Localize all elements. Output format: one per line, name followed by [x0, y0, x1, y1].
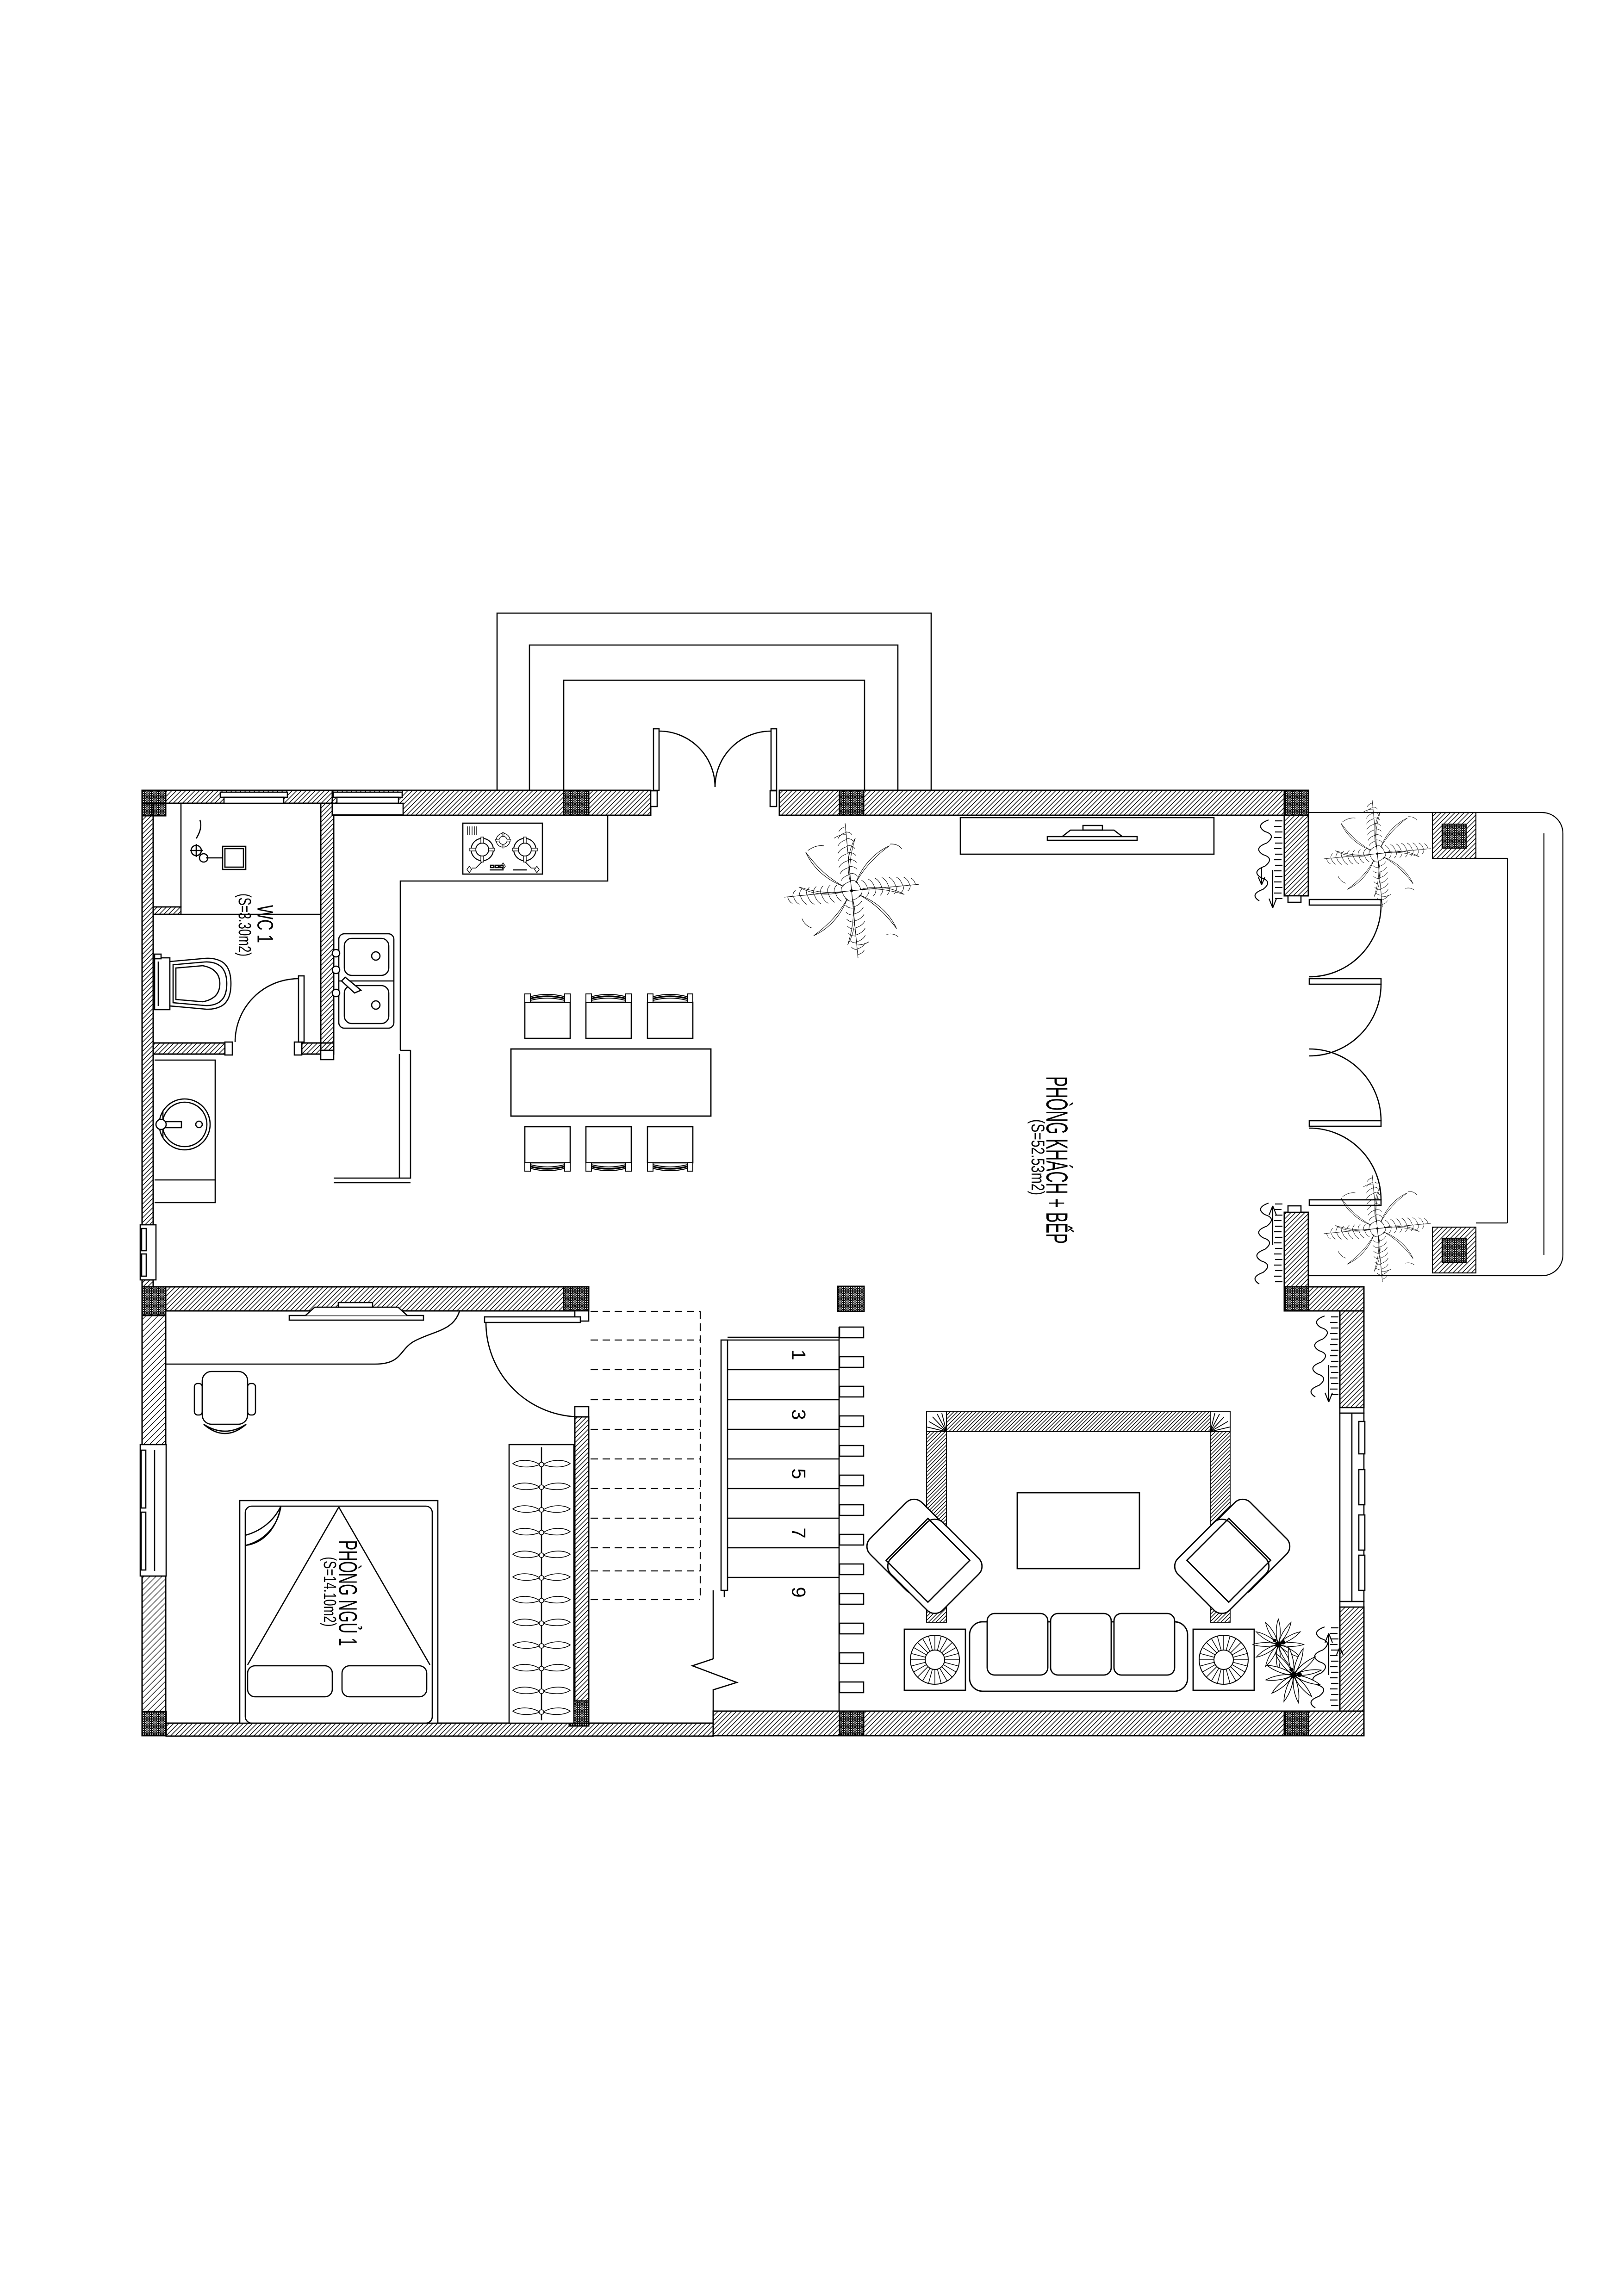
svg-text:(S=3.30m2): (S=3.30m2): [235, 894, 254, 956]
svg-text:1: 1: [788, 1349, 810, 1360]
svg-text:3: 3: [788, 1409, 810, 1420]
svg-text:(S=14.10m2): (S=14.10m2): [320, 1557, 339, 1627]
svg-text:7: 7: [788, 1527, 810, 1538]
svg-text:(S=52.53m2): (S=52.53m2): [1027, 1119, 1048, 1195]
svg-text:5: 5: [788, 1468, 810, 1479]
svg-text:9: 9: [788, 1587, 810, 1597]
svg-text:WC 1: WC 1: [253, 905, 277, 943]
